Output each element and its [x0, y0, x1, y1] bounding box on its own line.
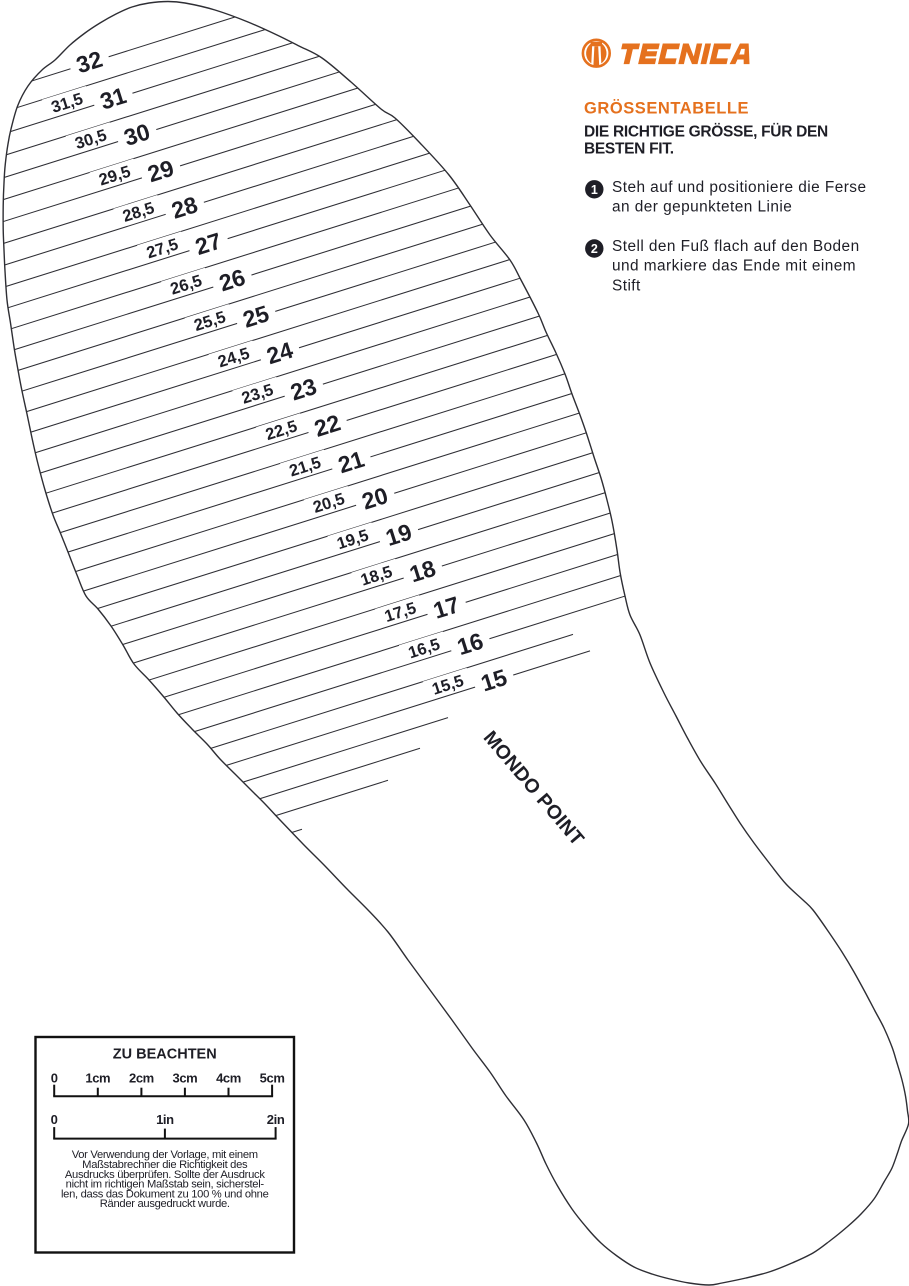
- svg-text:BESTEN FIT.: BESTEN FIT.: [584, 141, 674, 158]
- svg-text:GRÖSSENTABELLE: GRÖSSENTABELLE: [584, 99, 749, 118]
- svg-text:Stift: Stift: [612, 277, 641, 294]
- svg-text:und markiere das Ende mit eine: und markiere das Ende mit einem: [612, 258, 856, 275]
- svg-text:2in: 2in: [267, 1112, 285, 1127]
- svg-text:2cm: 2cm: [129, 1070, 154, 1085]
- svg-text:Stell den Fuß flach auf den Bo: Stell den Fuß flach auf den Boden: [612, 238, 860, 255]
- svg-text:0: 0: [51, 1070, 58, 1085]
- svg-text:5cm: 5cm: [260, 1070, 285, 1085]
- svg-text:1in: 1in: [156, 1112, 174, 1127]
- svg-text:1cm: 1cm: [85, 1070, 110, 1085]
- svg-text:DIE RICHTIGE GRÖSSE, FÜR DEN: DIE RICHTIGE GRÖSSE, FÜR DEN: [584, 123, 828, 140]
- svg-text:Steh auf und positioniere die: Steh auf und positioniere die Ferse: [612, 179, 866, 196]
- svg-text:2: 2: [591, 242, 598, 256]
- svg-text:an der gepunkteten Linie: an der gepunkteten Linie: [612, 199, 792, 216]
- svg-text:4cm: 4cm: [216, 1070, 241, 1085]
- svg-text:1: 1: [591, 183, 598, 197]
- svg-text:3cm: 3cm: [172, 1070, 197, 1085]
- svg-text:Ränder ausgedruckt wurde.: Ränder ausgedruckt wurde.: [100, 1198, 230, 1210]
- svg-text:0: 0: [51, 1112, 58, 1127]
- svg-text:ZU BEACHTEN: ZU BEACHTEN: [113, 1047, 217, 1063]
